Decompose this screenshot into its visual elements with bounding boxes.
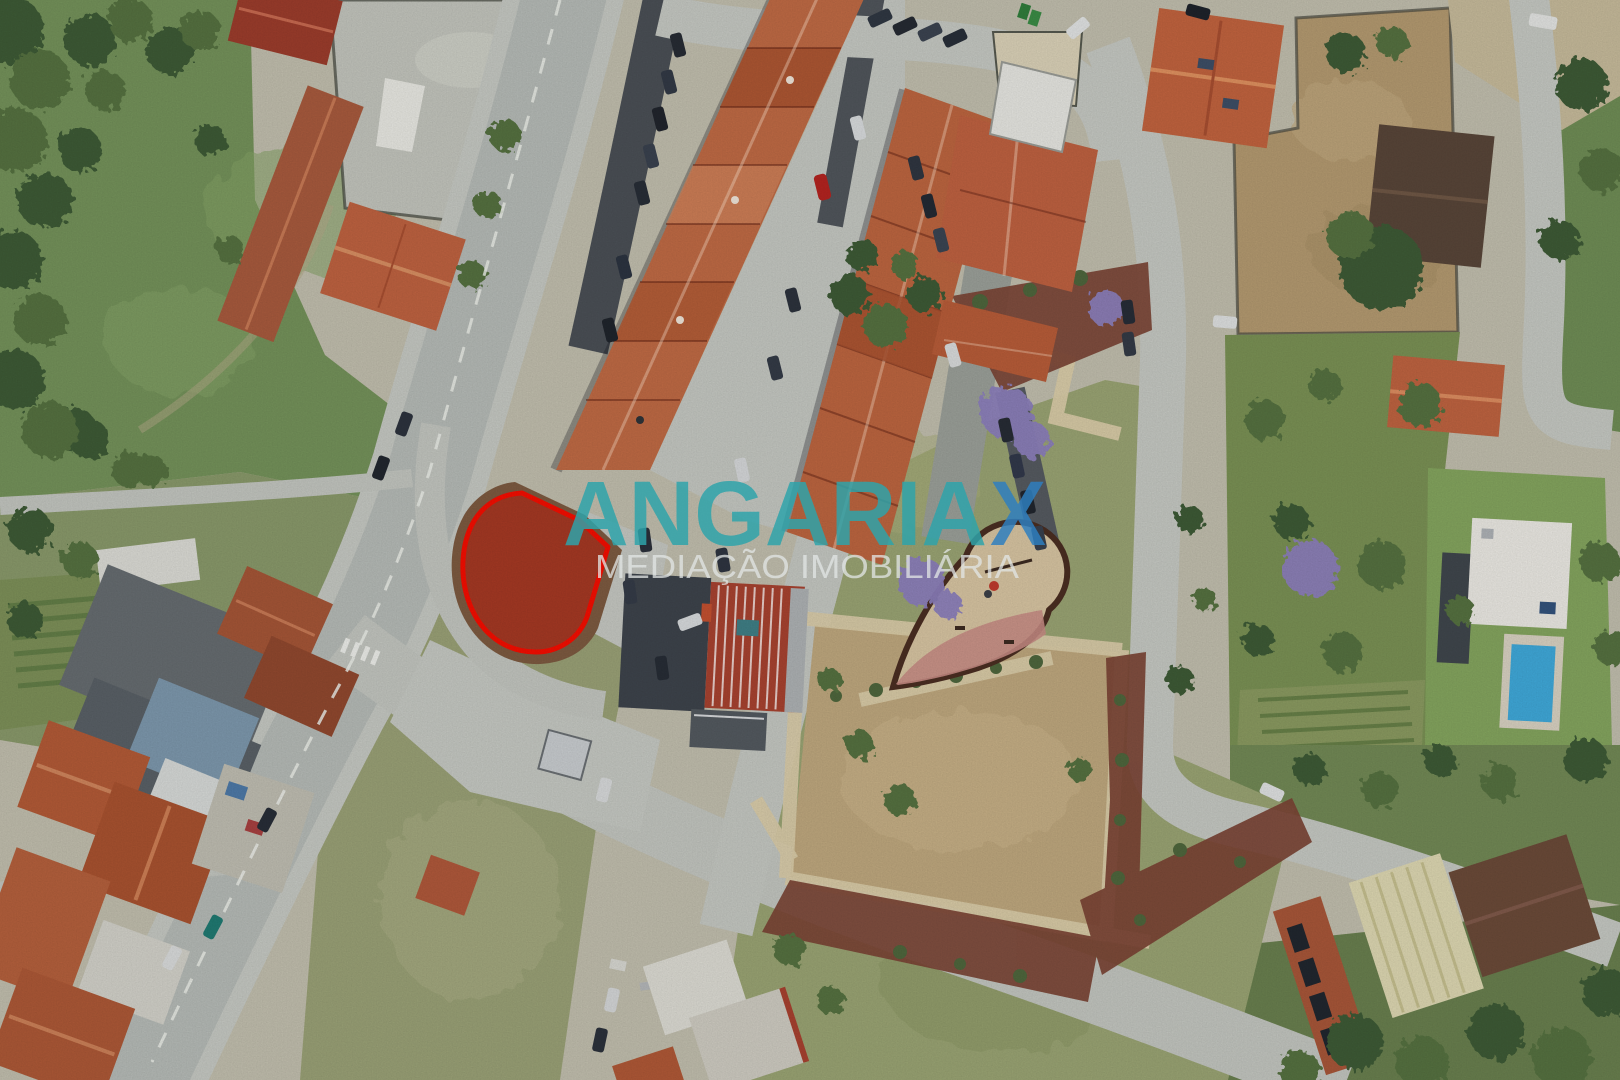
aerial-photo-listing: ANGARIAX MEDIAÇÃO IMOBILIÁRIA bbox=[0, 0, 1620, 1080]
watermark: ANGARIAX MEDIAÇÃO IMOBILIÁRIA bbox=[563, 463, 1046, 585]
watermark-subtitle: MEDIAÇÃO IMOBILIÁRIA bbox=[595, 548, 1019, 585]
